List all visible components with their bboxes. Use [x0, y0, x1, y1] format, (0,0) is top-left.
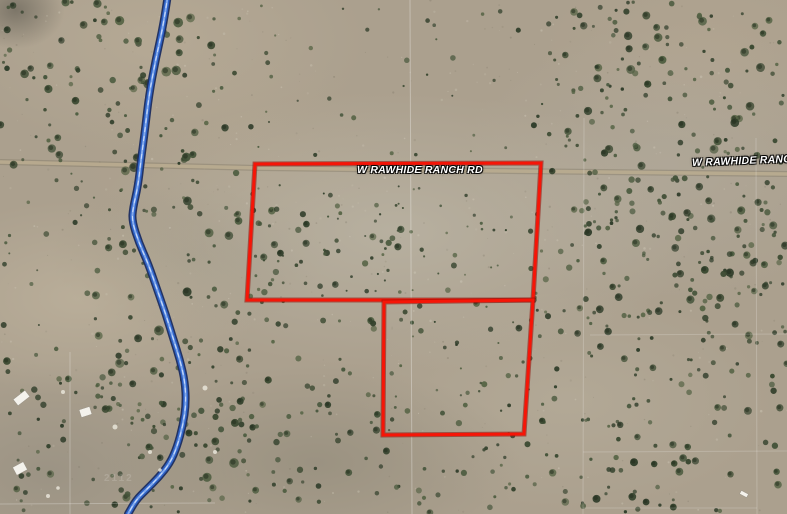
map-watermark: 2112: [104, 473, 134, 484]
building: [740, 490, 749, 497]
creek-stream: [128, 0, 186, 514]
parcel-boundary-lower: [383, 300, 533, 435]
satellite-map-viewport[interactable]: W RAWHIDE RANCH RD W RAWHIDE RANCH R 211…: [0, 0, 787, 514]
building: [79, 406, 92, 417]
parcel-boundary-lower-outline: [383, 300, 533, 435]
parcel-boundary-upper-outline: [247, 163, 541, 300]
map-canvas: [0, 0, 787, 514]
parcel-boundary-upper: [247, 163, 541, 300]
parcel-boundaries: [247, 163, 541, 435]
building: [13, 462, 28, 476]
road-label-center: W RAWHIDE RANCH RD: [357, 164, 483, 176]
